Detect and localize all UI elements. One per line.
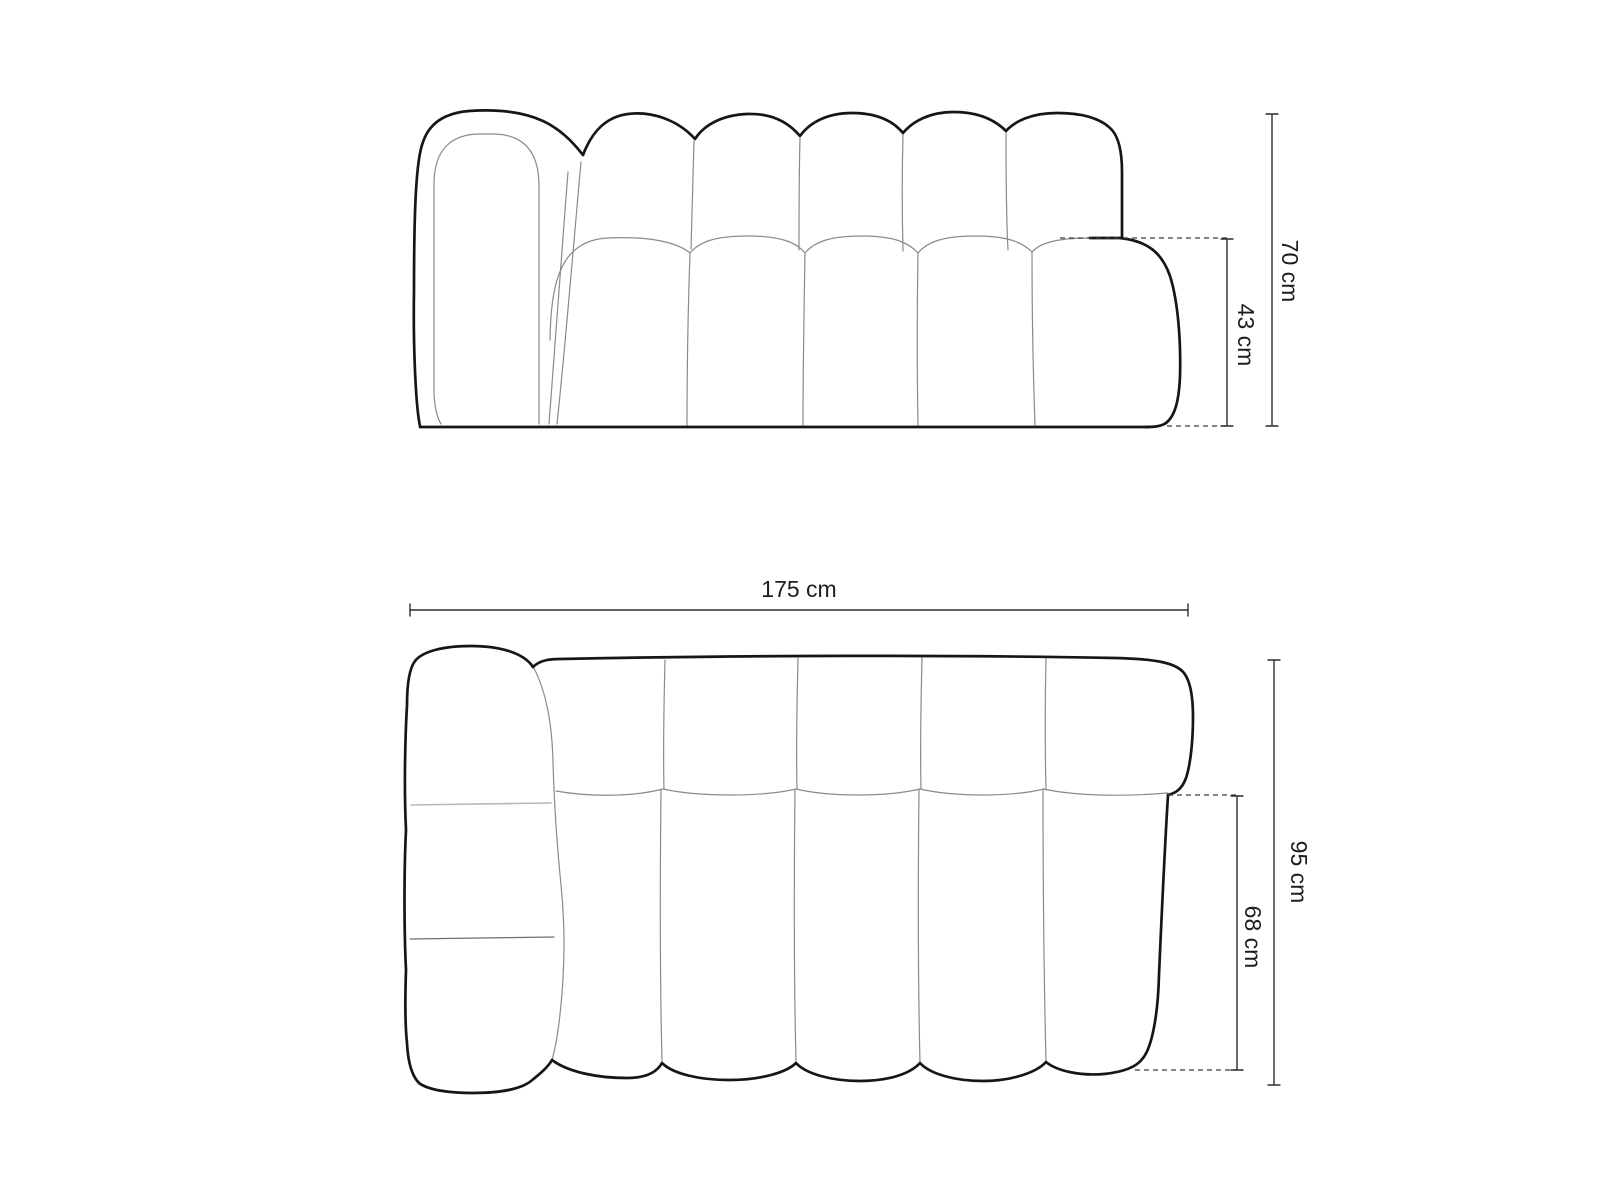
plan-armrest-body-boundary — [533, 666, 564, 1060]
plan-right-seat-edge — [1143, 795, 1168, 1058]
front-armrest-outline — [414, 110, 583, 426]
dimension-line-95cm — [1268, 660, 1281, 1085]
front-seat-cushion-separators — [687, 252, 1035, 425]
plan-armrest-divider-1 — [411, 803, 551, 805]
top-view — [405, 604, 1281, 1094]
dimension-label-seat-depth: 68 cm — [1239, 877, 1267, 997]
plan-back-channel-dividers — [664, 657, 1046, 790]
plan-back-seat-boundary — [556, 789, 1168, 795]
dimension-label-total-depth: 95 cm — [1285, 812, 1313, 932]
plan-armrest-divider-2 — [410, 937, 554, 939]
plan-seat-channel-dividers — [660, 789, 1046, 1063]
dimension-label-seat-height: 43 cm — [1232, 275, 1260, 395]
front-back-cushion-humps — [583, 112, 1122, 237]
front-armrest-fold-line-a — [549, 172, 568, 424]
dimension-label-total-height: 70 cm — [1276, 211, 1304, 331]
dimension-line-175cm — [410, 604, 1188, 617]
plan-seat-front-scallops — [552, 1058, 1143, 1081]
front-armrest-fold-line-b — [557, 162, 581, 424]
plan-body-top-edge — [533, 656, 1193, 795]
plan-armrest-outline — [405, 646, 553, 1093]
sofa-dimension-diagram: 70 cm 43 cm 175 cm 95 cm 68 cm — [0, 0, 1600, 1200]
front-right-end-cushion — [1090, 238, 1180, 427]
front-back-cushion-separators — [691, 133, 1008, 251]
front-seat-cushion-arcs — [550, 236, 1090, 340]
dimension-label-total-width: 175 cm — [739, 575, 859, 603]
front-armrest-inner-panel — [434, 134, 539, 424]
front-view — [414, 110, 1279, 427]
